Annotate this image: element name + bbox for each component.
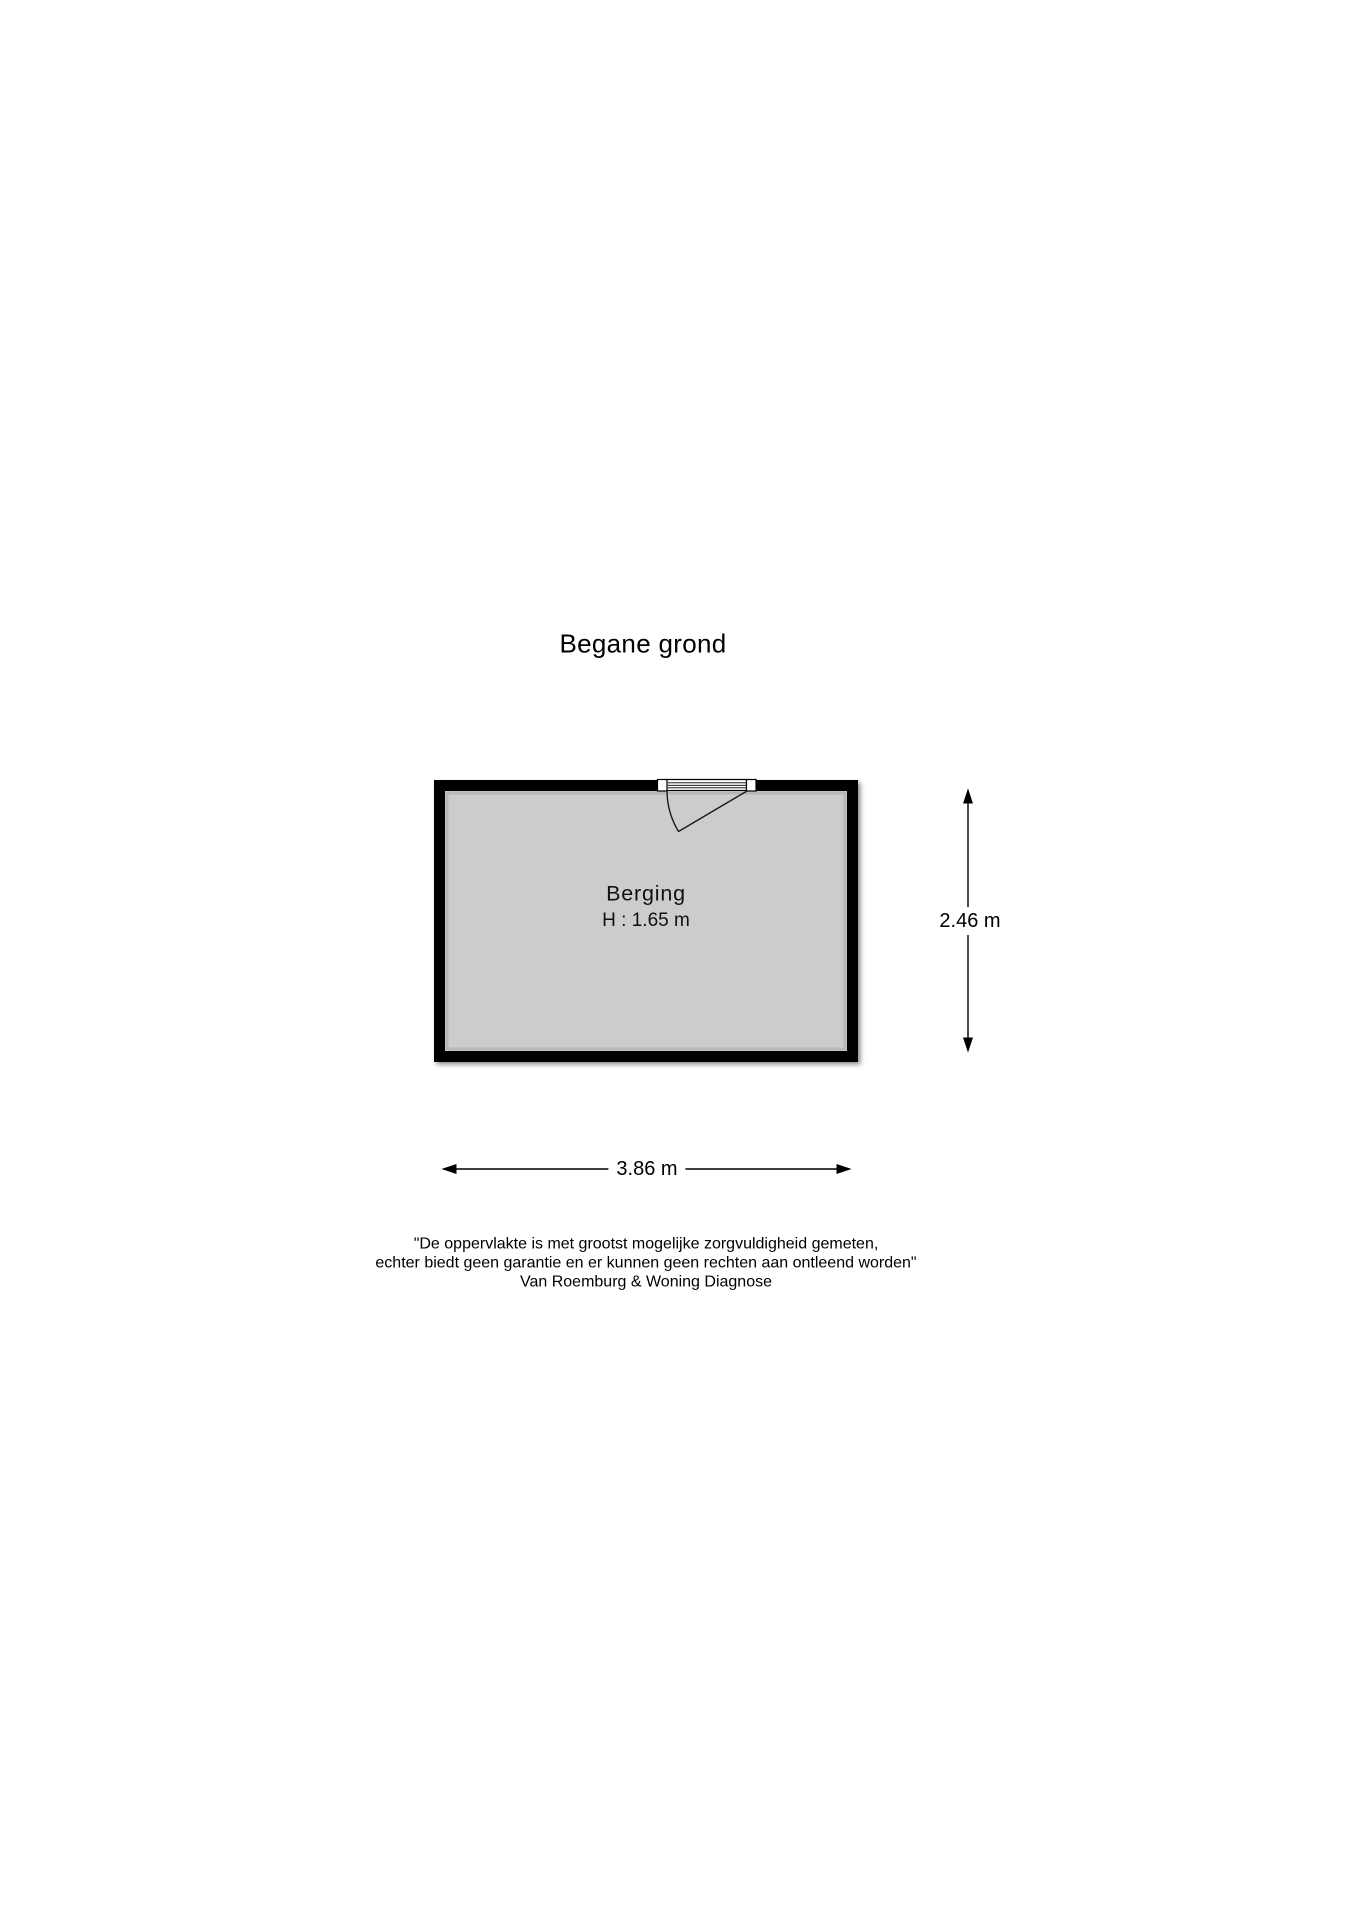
arrow-right-icon xyxy=(837,1165,850,1174)
page-title: Begane grond xyxy=(560,629,727,660)
arrow-up-icon xyxy=(964,790,973,803)
floorplan-drawing xyxy=(0,0,1358,1920)
width-dimension-label: 3.86 m xyxy=(608,1156,685,1182)
floorplan-page: Begane grond Berging H : 1.65 m 2.46 m 3… xyxy=(0,0,1358,1920)
room-ceiling-height-label: H : 1.65 m xyxy=(602,910,690,932)
disclaimer-line-2: echter biedt geen garantie en er kunnen … xyxy=(375,1254,916,1273)
disclaimer-line-3: Van Roemburg & Woning Diagnose xyxy=(375,1273,916,1292)
disclaimer-text: "De oppervlakte is met grootst mogelijke… xyxy=(375,1235,916,1292)
room-label: Berging xyxy=(606,882,686,907)
depth-dimension-label: 2.46 m xyxy=(935,907,1004,935)
door-jamb-left xyxy=(658,780,668,792)
arrow-left-icon xyxy=(443,1165,456,1174)
door-jamb-right xyxy=(747,780,757,792)
arrow-down-icon xyxy=(964,1038,973,1051)
disclaimer-line-1: "De oppervlakte is met grootst mogelijke… xyxy=(375,1235,916,1254)
